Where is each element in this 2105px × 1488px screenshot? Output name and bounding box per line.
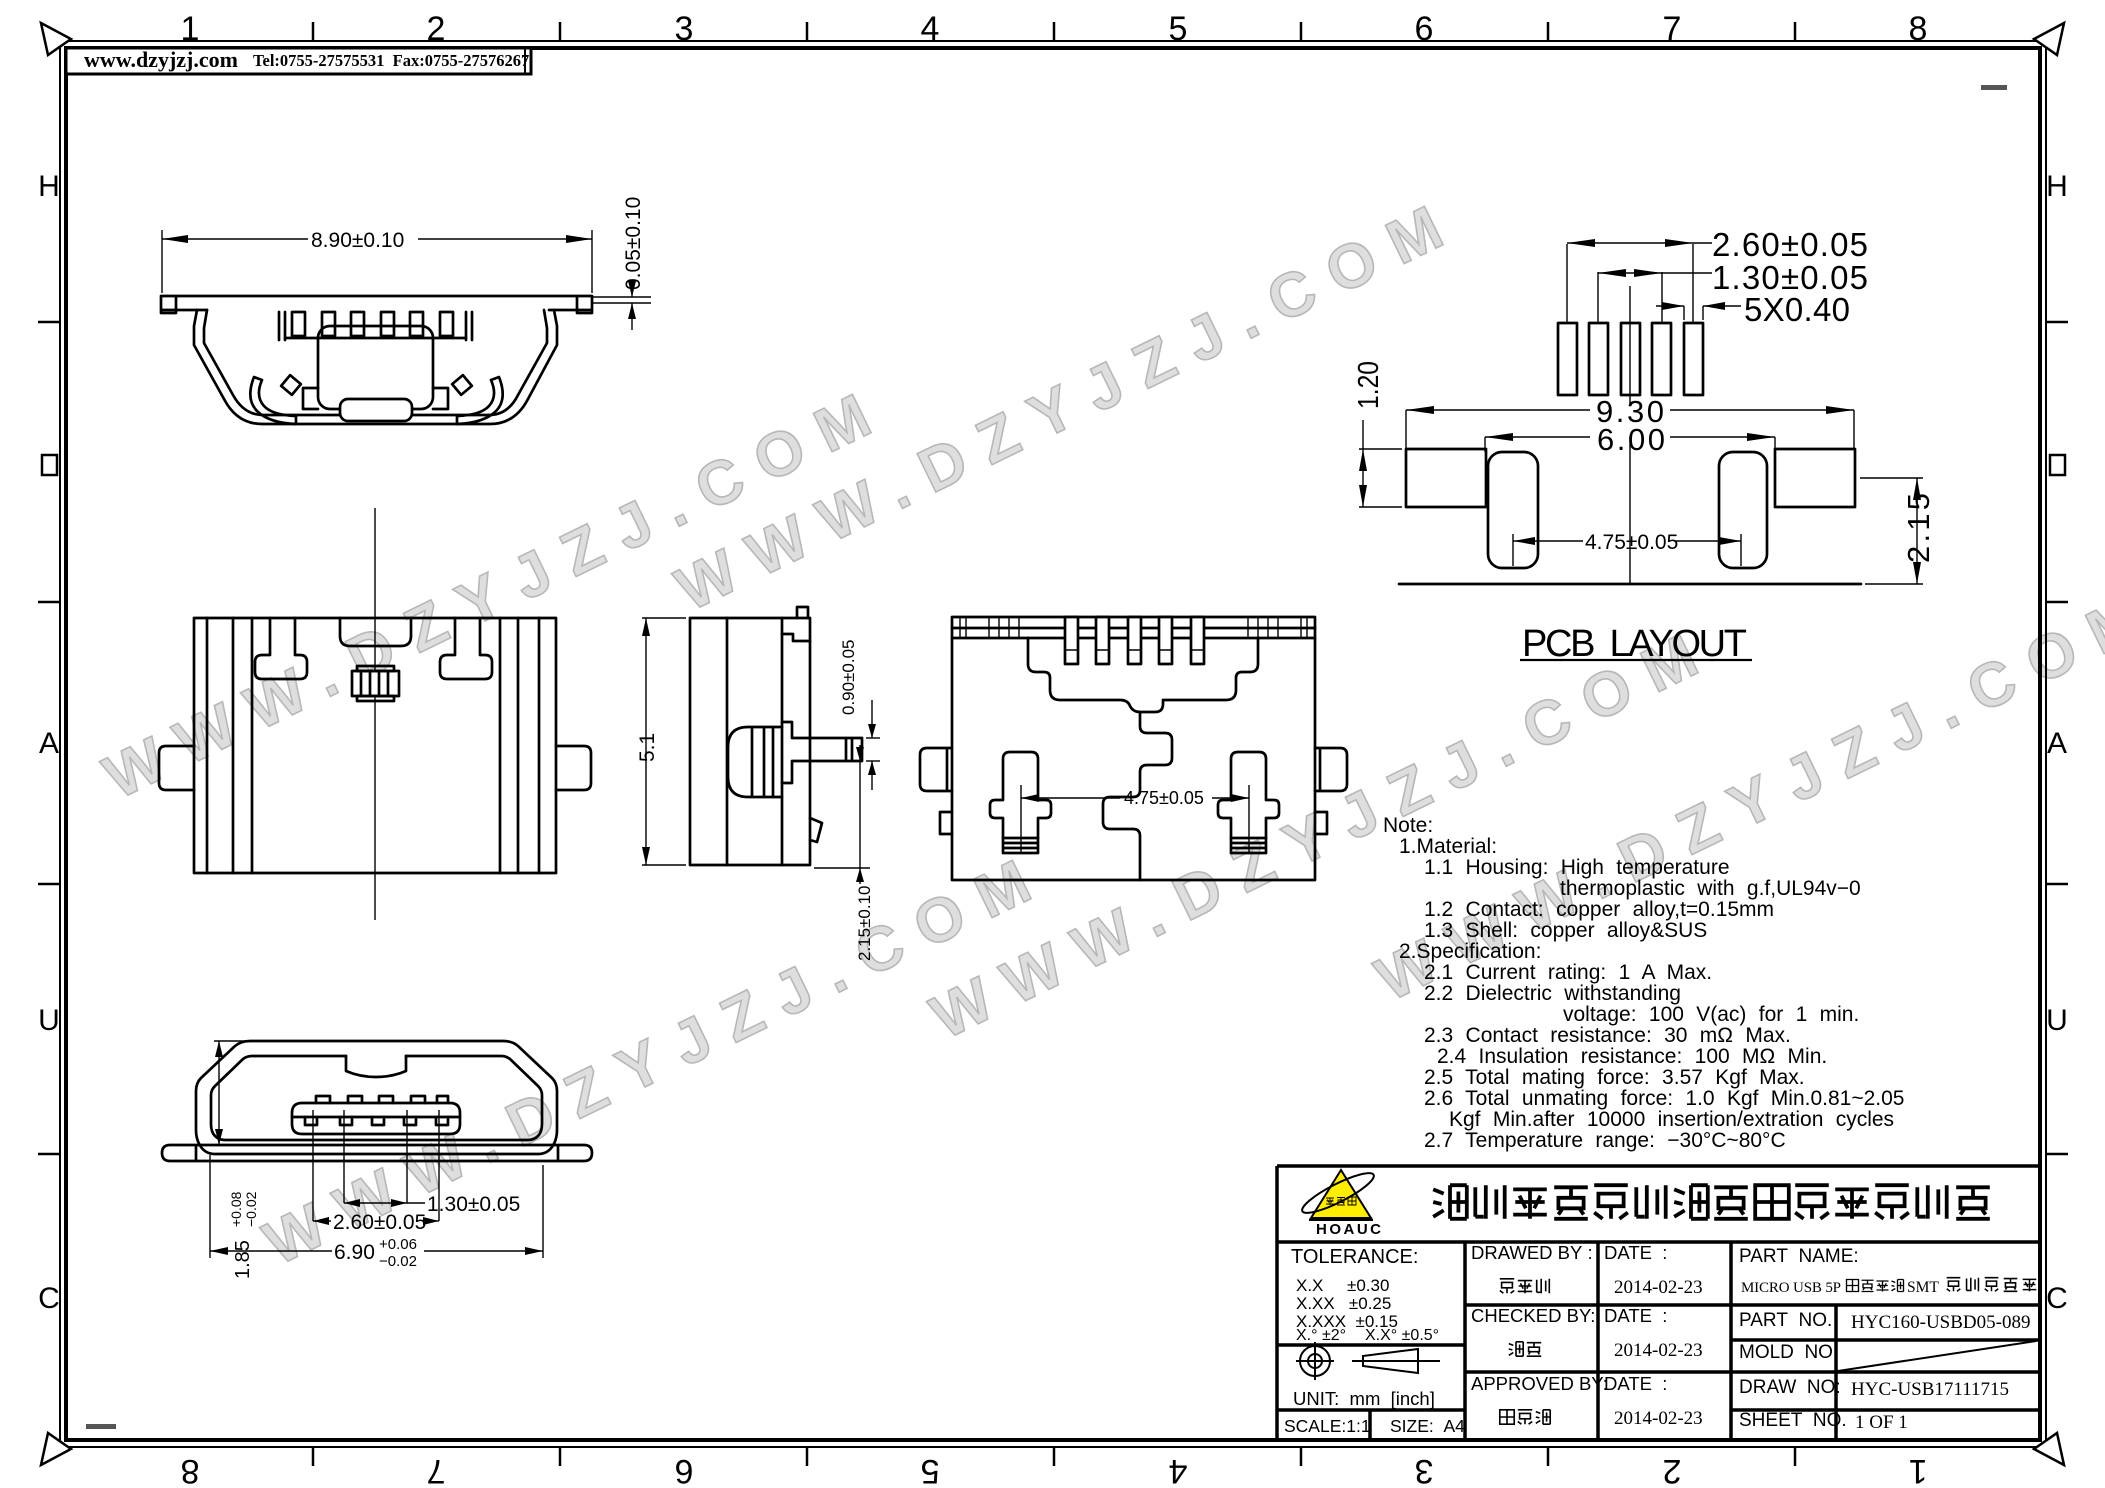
svg-text:+0.06: +0.06 — [379, 1236, 417, 1253]
svg-text:PART NO.: PART NO. — [1739, 1310, 1832, 1331]
svg-text:SMT: SMT — [1907, 1279, 1939, 1296]
svg-text:Tel:0755-27575531 Fax:0755-27: Tel:0755-27575531 Fax:0755-27576267 — [253, 51, 529, 70]
svg-text:Kgf Min.after 10000 insertion/: Kgf Min.after 10000 insertion/extration … — [1449, 1108, 1894, 1131]
svg-text:8: 8 — [181, 1452, 200, 1488]
svg-text:C: C — [2046, 1282, 2068, 1315]
svg-text:5: 5 — [1169, 10, 1188, 48]
svg-text:5.1: 5.1 — [636, 733, 659, 762]
svg-text:2.15±0.10: 2.15±0.10 — [855, 885, 874, 961]
svg-text:DRAWED BY :: DRAWED BY : — [1471, 1242, 1593, 1263]
svg-text:1: 1 — [181, 10, 200, 48]
svg-text:4.75±0.05: 4.75±0.05 — [1124, 788, 1204, 808]
svg-text:2: 2 — [1663, 1452, 1682, 1488]
svg-text:X.° ±2°: X.° ±2° — [1296, 1327, 1346, 1344]
svg-text:1.85: 1.85 — [232, 1240, 254, 1279]
svg-text:thermoplastic with g.f,UL94v−0: thermoplastic with g.f,UL94v−0 — [1560, 877, 1861, 900]
svg-text:2.3 Contact resistance: 30 mΩ: 2.3 Contact resistance: 30 mΩ Max. — [1424, 1024, 1791, 1047]
svg-text:1.1 Housing: High temperature: 1.1 Housing: High temperature — [1424, 856, 1730, 879]
svg-text:1.2 Contact: copper alloy,t=0.: 1.2 Contact: copper alloy,t=0.15mm — [1424, 898, 1774, 921]
svg-text:0.90±0.05: 0.90±0.05 — [839, 639, 858, 715]
svg-text:www.dzyjzj.com: www.dzyjzj.com — [84, 47, 238, 72]
svg-text:H: H — [2046, 170, 2068, 203]
svg-text:1.Material:: 1.Material: — [1399, 835, 1497, 858]
svg-text:CHECKED BY:: CHECKED BY: — [1471, 1305, 1595, 1326]
svg-text:2.6 Total unmating force: 1.0: 2.6 Total unmating force: 1.0 Kgf Min.0.… — [1424, 1087, 1904, 1110]
svg-text:8.90±0.10: 8.90±0.10 — [311, 229, 404, 252]
svg-text:MICRO USB 5P: MICRO USB 5P — [1741, 1280, 1841, 1296]
svg-text:X.X° ±0.5°: X.X° ±0.5° — [1365, 1327, 1439, 1344]
svg-text:voltage: 100 V(ac) for 1 min.: voltage: 100 V(ac) for 1 min. — [1563, 1003, 1859, 1026]
svg-text:H: H — [38, 170, 60, 203]
svg-text:3: 3 — [1415, 1452, 1434, 1488]
svg-text:SCALE:1:1: SCALE:1:1 — [1284, 1416, 1371, 1436]
svg-text:1: 1 — [1909, 1452, 1928, 1488]
svg-text:APPROVED BY:: APPROVED BY: — [1471, 1373, 1608, 1394]
svg-text:7: 7 — [1663, 10, 1682, 48]
svg-text:C: C — [38, 1282, 60, 1315]
svg-text:2.7 Temperature range: −30°C~8: 2.7 Temperature range: −30°C~80°C — [1424, 1129, 1786, 1152]
svg-text:DATE :: DATE : — [1604, 1373, 1667, 1394]
svg-text:SIZE: A4: SIZE: A4 — [1390, 1416, 1465, 1436]
svg-text:2014-02-23: 2014-02-23 — [1614, 1408, 1703, 1429]
svg-text:6: 6 — [675, 1452, 694, 1488]
svg-text:DRAW NO:: DRAW NO: — [1739, 1377, 1841, 1398]
svg-text:2.5 Total mating force: 3.57 K: 2.5 Total mating force: 3.57 Kgf Max. — [1424, 1066, 1805, 1089]
svg-text:U: U — [2046, 1004, 2068, 1037]
svg-text:DATE :: DATE : — [1604, 1242, 1667, 1263]
svg-text:2014-02-23: 2014-02-23 — [1614, 1277, 1703, 1298]
svg-text:2.2 Dielectric withstanding: 2.2 Dielectric withstanding — [1424, 982, 1681, 1005]
svg-text:6.00: 6.00 — [1597, 422, 1665, 457]
svg-text:MOLD NO.: MOLD NO. — [1739, 1342, 1838, 1363]
svg-text:0.05±0.10: 0.05±0.10 — [622, 197, 645, 290]
svg-text:4: 4 — [1169, 1452, 1188, 1488]
svg-text:4: 4 — [921, 10, 940, 48]
svg-text:U: U — [38, 1004, 60, 1037]
svg-text:A: A — [39, 727, 59, 760]
svg-text:2.15: 2.15 — [1901, 493, 1936, 563]
svg-text:1 OF 1: 1 OF 1 — [1855, 1412, 1908, 1433]
svg-text:3: 3 — [675, 10, 694, 48]
svg-text:2.4 Insulation resistance: 100: 2.4 Insulation resistance: 100 MΩ Min. — [1437, 1045, 1827, 1068]
svg-text:2: 2 — [427, 10, 446, 48]
svg-text:6.90: 6.90 — [334, 1241, 375, 1264]
svg-text:+0.08: +0.08 — [228, 1191, 244, 1227]
svg-text:1.30±0.05: 1.30±0.05 — [427, 1193, 520, 1216]
svg-text:HOAUC: HOAUC — [1316, 1221, 1384, 1238]
svg-text:2.1 Current rating: 1 A Max.: 2.1 Current rating: 1 A Max. — [1424, 961, 1712, 984]
svg-text:4.75±0.05: 4.75±0.05 — [1585, 531, 1678, 554]
svg-text:−0.02: −0.02 — [379, 1253, 417, 1270]
svg-text:PART NAME:: PART NAME: — [1739, 1246, 1859, 1267]
svg-text:7: 7 — [427, 1452, 446, 1488]
svg-text:SHEET NO.: SHEET NO. — [1739, 1410, 1847, 1431]
svg-text:DATE :: DATE : — [1604, 1305, 1667, 1326]
svg-text:HYC160-USBD05-089: HYC160-USBD05-089 — [1851, 1312, 2030, 1333]
svg-text:PCB LAYOUT: PCB LAYOUT — [1522, 623, 1747, 665]
svg-text:TOLERANCE:: TOLERANCE: — [1291, 1246, 1418, 1268]
svg-text:−0.02: −0.02 — [243, 1191, 259, 1227]
svg-text:1.20: 1.20 — [1353, 361, 1385, 409]
svg-text:Note:: Note: — [1383, 814, 1433, 837]
svg-text:X.XX ±0.25: X.XX ±0.25 — [1296, 1294, 1391, 1313]
svg-text:2.60±0.05: 2.60±0.05 — [1712, 226, 1868, 263]
svg-text:2.60±0.05: 2.60±0.05 — [333, 1211, 426, 1234]
svg-text:1.3 Shell: copper alloy&SUS: 1.3 Shell: copper alloy&SUS — [1424, 919, 1707, 942]
svg-text:UNIT: mm [inch]: UNIT: mm [inch] — [1293, 1388, 1435, 1409]
svg-text:6: 6 — [1415, 10, 1434, 48]
svg-text:8: 8 — [1909, 10, 1928, 48]
svg-text:X.X ±0.30: X.X ±0.30 — [1296, 1276, 1389, 1295]
svg-text:HYC-USB17111715: HYC-USB17111715 — [1851, 1379, 2009, 1400]
svg-text:A: A — [2047, 727, 2067, 760]
svg-text:2.Specification:: 2.Specification: — [1399, 940, 1541, 963]
svg-text:5: 5 — [921, 1452, 940, 1488]
svg-text:5X0.40: 5X0.40 — [1744, 291, 1850, 328]
svg-text:2014-02-23: 2014-02-23 — [1614, 1340, 1703, 1361]
